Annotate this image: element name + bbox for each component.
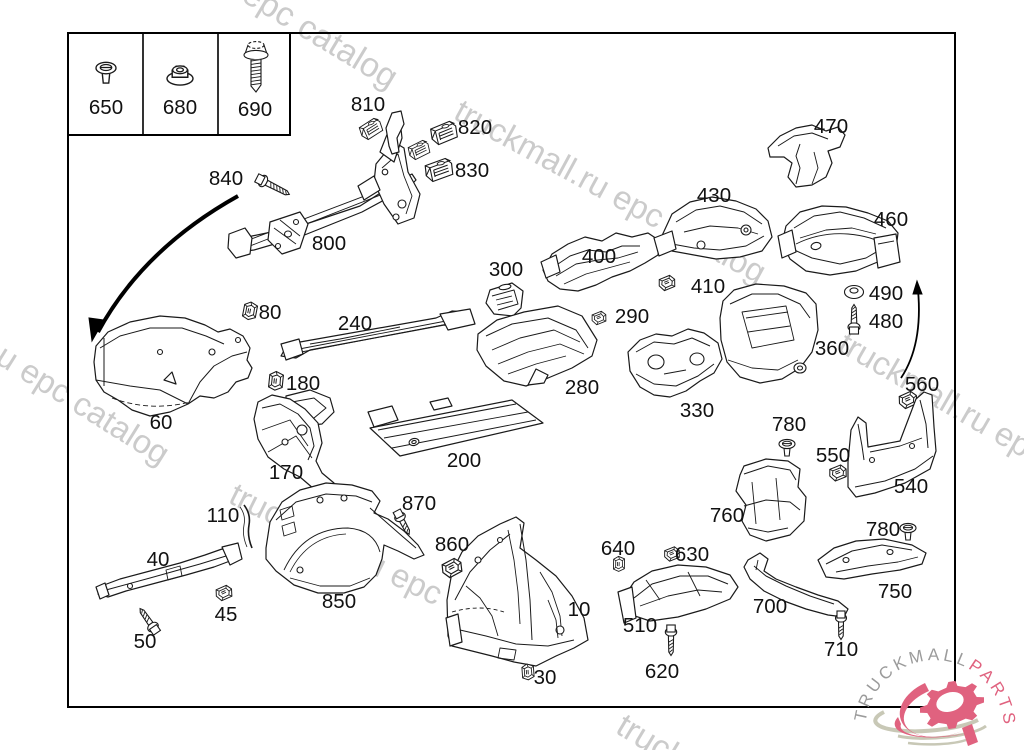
- svg-text:460: 460: [874, 208, 908, 231]
- svg-text:45: 45: [215, 603, 238, 626]
- svg-text:860: 860: [435, 533, 469, 556]
- svg-text:780: 780: [772, 413, 806, 436]
- svg-text:60: 60: [150, 411, 173, 434]
- svg-text:840: 840: [209, 167, 243, 190]
- svg-text:360: 360: [815, 337, 849, 360]
- svg-text:470: 470: [814, 115, 848, 138]
- svg-text:760: 760: [710, 504, 744, 527]
- svg-text:640: 640: [601, 537, 635, 560]
- svg-text:800: 800: [312, 232, 346, 255]
- svg-text:290: 290: [615, 305, 649, 328]
- svg-text:710: 710: [824, 638, 858, 661]
- svg-text:110: 110: [207, 504, 240, 527]
- svg-text:810: 810: [351, 93, 385, 116]
- svg-text:430: 430: [697, 184, 731, 207]
- svg-text:330: 330: [680, 399, 714, 422]
- svg-text:690: 690: [238, 98, 272, 121]
- svg-text:550: 550: [816, 444, 850, 467]
- svg-text:400: 400: [582, 245, 616, 268]
- svg-text:620: 620: [645, 660, 679, 683]
- svg-text:780: 780: [866, 518, 900, 541]
- svg-text:200: 200: [447, 449, 481, 472]
- svg-text:480: 480: [869, 310, 903, 333]
- svg-text:300: 300: [489, 258, 523, 281]
- svg-text:700: 700: [753, 595, 787, 618]
- svg-text:50: 50: [134, 630, 157, 653]
- svg-text:540: 540: [894, 475, 928, 498]
- svg-text:170: 170: [269, 461, 303, 484]
- svg-text:180: 180: [286, 372, 320, 395]
- svg-text:80: 80: [259, 301, 282, 324]
- svg-text:850: 850: [322, 590, 356, 613]
- svg-text:650: 650: [89, 96, 123, 119]
- svg-text:560: 560: [905, 373, 939, 396]
- svg-text:820: 820: [458, 116, 492, 139]
- svg-text:40: 40: [147, 548, 170, 571]
- svg-text:30: 30: [534, 666, 557, 689]
- svg-text:680: 680: [163, 96, 197, 119]
- svg-text:490: 490: [869, 282, 903, 305]
- svg-text:750: 750: [878, 580, 912, 603]
- svg-text:240: 240: [338, 312, 372, 335]
- svg-text:280: 280: [565, 376, 599, 399]
- svg-text:10: 10: [568, 598, 591, 621]
- svg-text:510: 510: [623, 614, 657, 637]
- svg-text:870: 870: [402, 492, 436, 515]
- svg-text:630: 630: [675, 543, 709, 566]
- svg-text:410: 410: [691, 275, 725, 298]
- svg-text:830: 830: [455, 159, 489, 182]
